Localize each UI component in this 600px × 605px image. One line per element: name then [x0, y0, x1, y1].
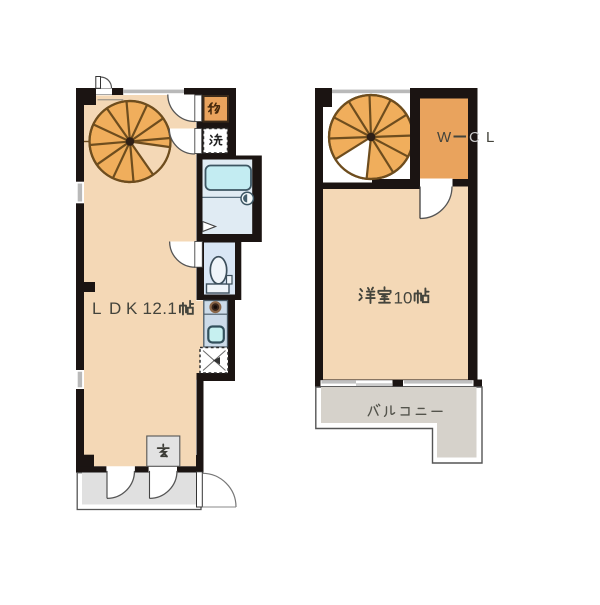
svg-text:L: L [486, 129, 494, 146]
svg-text:L: L [92, 299, 101, 318]
svg-text:C: C [469, 129, 480, 146]
svg-text:W: W [437, 129, 452, 146]
svg-text:12.1: 12.1 [143, 299, 178, 318]
svg-text:D: D [109, 299, 121, 318]
svg-text:K: K [126, 299, 138, 318]
svg-text:10: 10 [394, 289, 413, 308]
